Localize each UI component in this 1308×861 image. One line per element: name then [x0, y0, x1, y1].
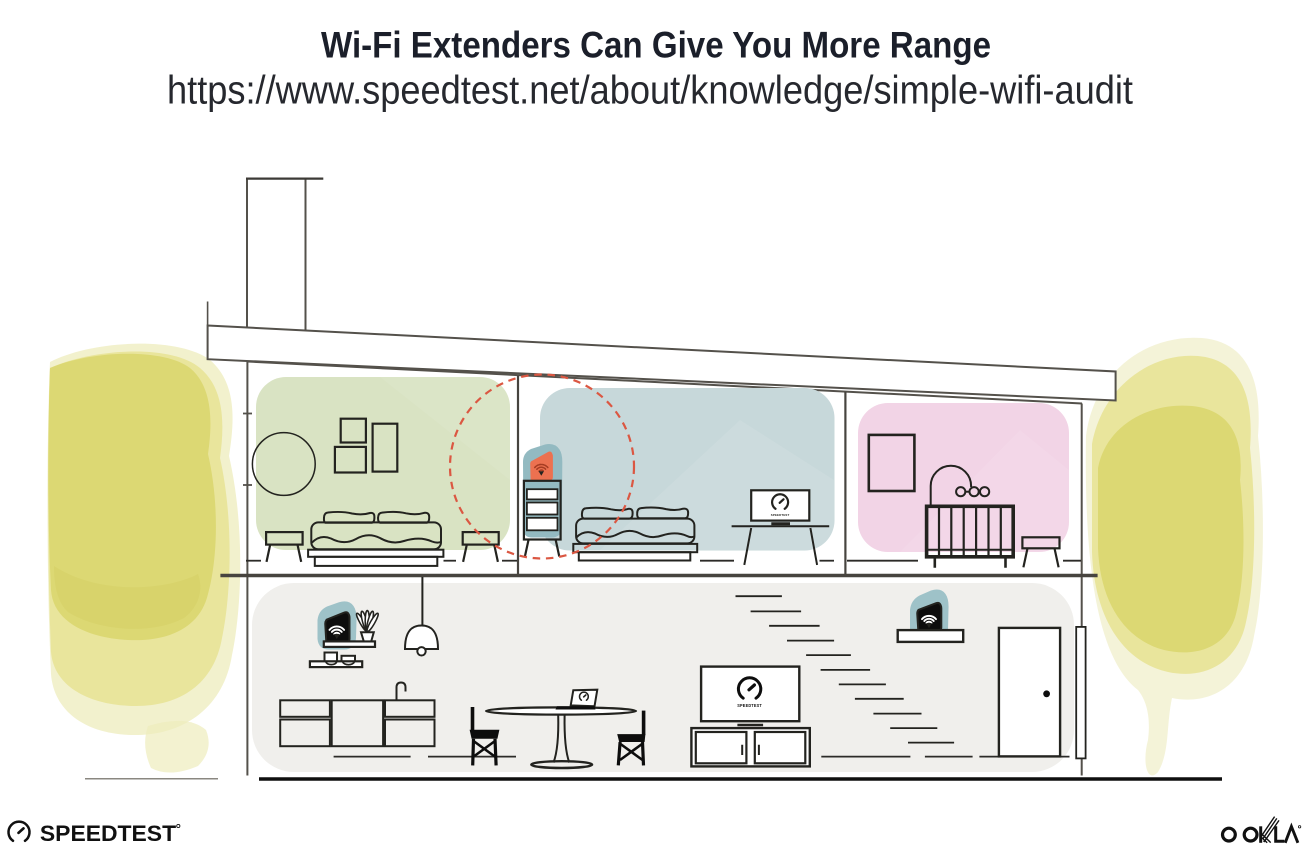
svg-text:Wi-Fi Extenders Can Give You M: Wi-Fi Extenders Can Give You More Range [321, 24, 991, 66]
svg-text:SPEEDTEST: SPEEDTEST [771, 514, 790, 517]
svg-text:SPEEDTEST: SPEEDTEST [737, 703, 762, 708]
svg-text:https://www.speedtest.net/abou: https://www.speedtest.net/about/knowledg… [167, 69, 1133, 113]
svg-text:SPEEDTEST: SPEEDTEST [40, 821, 177, 846]
